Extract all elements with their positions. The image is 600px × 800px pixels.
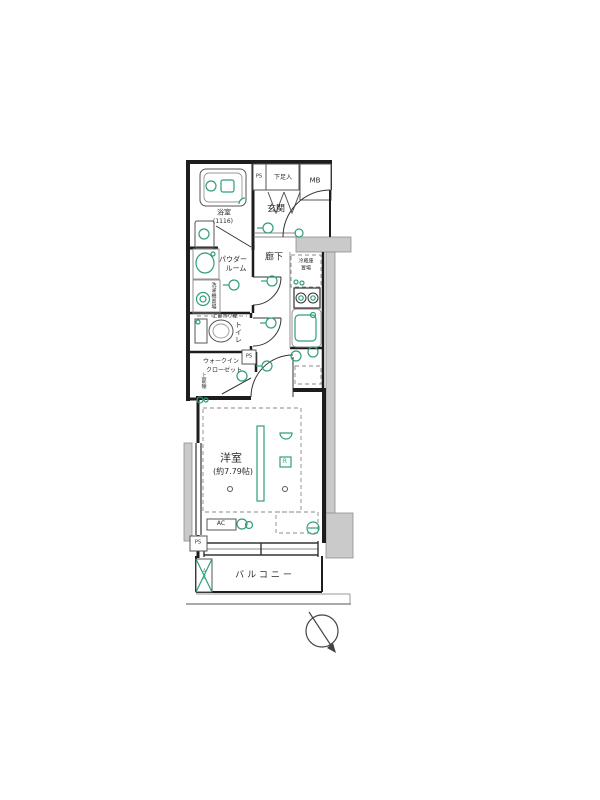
floor-plan-drawing: [0, 0, 600, 800]
bathroom-label: 浴室: [217, 210, 231, 217]
kitchen-sink-icon: [292, 309, 321, 347]
meter-box-label: MB: [310, 178, 321, 185]
floor-plan-page: 浴室 (1116) PS 下足入 MB 玄関 廊下 パウダー ルーム 冷蔵庫 置…: [0, 0, 600, 800]
pipe-shaft-label-wic: PS: [246, 355, 252, 360]
washer-label: 洗濯機置場: [211, 282, 216, 310]
wall-light-icon: [280, 433, 292, 439]
balcony-ac-label: AC: [202, 569, 207, 582]
pipe-shaft-label-top: PS: [256, 175, 262, 180]
toilet-door: [253, 318, 281, 346]
fridge-label-1: 冷蔵庫: [298, 260, 313, 265]
bathroom-vanity-icon: [195, 221, 214, 248]
north-arrow-icon: [306, 612, 338, 653]
bathtub-icon: [200, 169, 246, 206]
pipe-shaft-label-bottom: PS: [195, 541, 201, 546]
room-ac-unit: [207, 519, 253, 530]
bathroom-door: [216, 226, 251, 247]
shoe-cabinet-label: 下足入: [274, 175, 292, 181]
washbasin-icon: [193, 249, 219, 279]
upper-hanging-shelf-label: 上部吊り棚: [212, 315, 237, 320]
toilet-label: トイレ: [235, 321, 242, 344]
entrance-label: 玄関: [267, 206, 285, 215]
kitchen-overhead-cabinet: [295, 366, 321, 384]
balcony-label: バルコニー: [235, 572, 295, 581]
room-ac-label: AC: [217, 521, 225, 527]
upper-shelf-label: 上部棚: [201, 373, 206, 390]
western-room-label: 洋室: [220, 453, 242, 464]
room-pillar: [257, 426, 264, 501]
powder-room-label-2: ルーム: [226, 266, 247, 273]
remote-label: R: [283, 459, 287, 465]
powder-room-label-1: パウダー: [219, 257, 247, 264]
fridge-label-2: 置場: [301, 267, 311, 272]
wic-label-1: ウォークイン: [203, 359, 239, 365]
room-door: [251, 355, 293, 397]
stove-icon: [294, 288, 320, 308]
western-room-size-label: (約7.79帖): [213, 468, 253, 476]
wic-label-2: クローゼット: [206, 368, 242, 374]
hallway-label: 廊下: [265, 254, 283, 263]
bathroom-size-label: (1116): [213, 219, 233, 225]
